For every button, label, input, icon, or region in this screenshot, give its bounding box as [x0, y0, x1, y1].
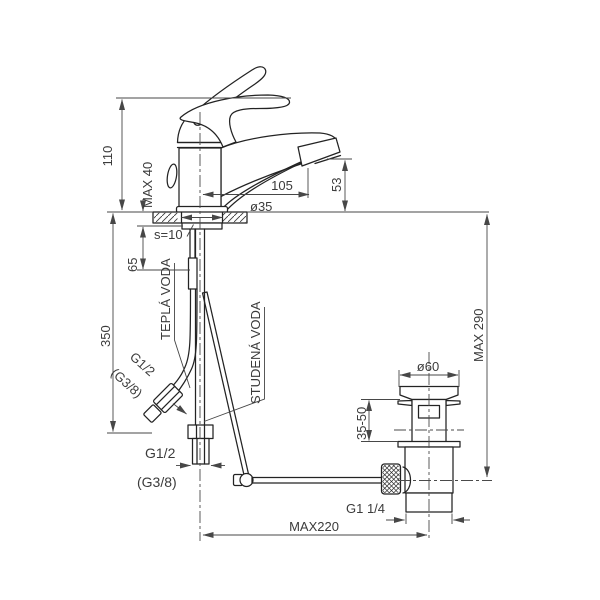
pop-up-linkage: [203, 292, 382, 487]
drain-clamp-range-label: 35-50: [354, 407, 369, 440]
body-height-label: 110: [100, 146, 115, 167]
cold-water-label: STUDENÁ VODA: [248, 301, 263, 404]
supply-pipes: [141, 229, 213, 464]
supply-end-nut: [188, 425, 213, 439]
supply-length-label: 350: [98, 325, 113, 347]
hot-hose-end-fitting: [141, 383, 183, 425]
lever-side-tab: [166, 163, 179, 188]
hot-water-label: TEPLÁ VODA: [158, 258, 173, 340]
faucet-technical-drawing: 110 MAX 40 105 53 ø35 s=10 65 350 TEPLÁ …: [0, 0, 600, 600]
horizontal-rod: [252, 478, 382, 484]
clamp-washer: [182, 223, 222, 229]
knurl-texture: [383, 465, 400, 493]
faucet-body: [166, 67, 341, 212]
rod-reach-label: MAX220: [289, 519, 339, 534]
drain-thread-label: G1 1/4: [346, 501, 385, 516]
plate-thickness-label: s=10: [154, 227, 183, 242]
hot-tube-fitting: [189, 258, 198, 289]
supply-thread-diagonal-label: G1/2: [127, 349, 158, 379]
spout-height-label: 53: [329, 178, 344, 192]
drain-flange-diameter-label: ø60: [417, 359, 439, 374]
hole-diameter-label: ø35: [250, 199, 272, 214]
spout-reach-label: 105: [271, 178, 293, 193]
drain-assembly: [382, 387, 461, 513]
supply-thread-bottom-label: G1/2: [145, 445, 176, 461]
supply-thread-end: [193, 439, 210, 465]
drain-height-label: MAX 290: [471, 309, 486, 362]
dome-collar: [178, 143, 222, 148]
technical-drawing-page: 110 MAX 40 105 53 ø35 s=10 65 350 TEPLÁ …: [0, 0, 600, 600]
shank-length-label: 65: [125, 258, 140, 272]
rod-ball-joint: [240, 474, 253, 487]
deck-hatch-left: [154, 213, 178, 222]
supply-thread-bottom-alt-label: (G3/8): [137, 474, 177, 490]
hot-supply-tube: [190, 229, 195, 258]
deck-hatch-right: [223, 213, 246, 222]
hot-water-leader: [175, 263, 191, 388]
deck-thickness-label: MAX 40: [140, 162, 155, 208]
